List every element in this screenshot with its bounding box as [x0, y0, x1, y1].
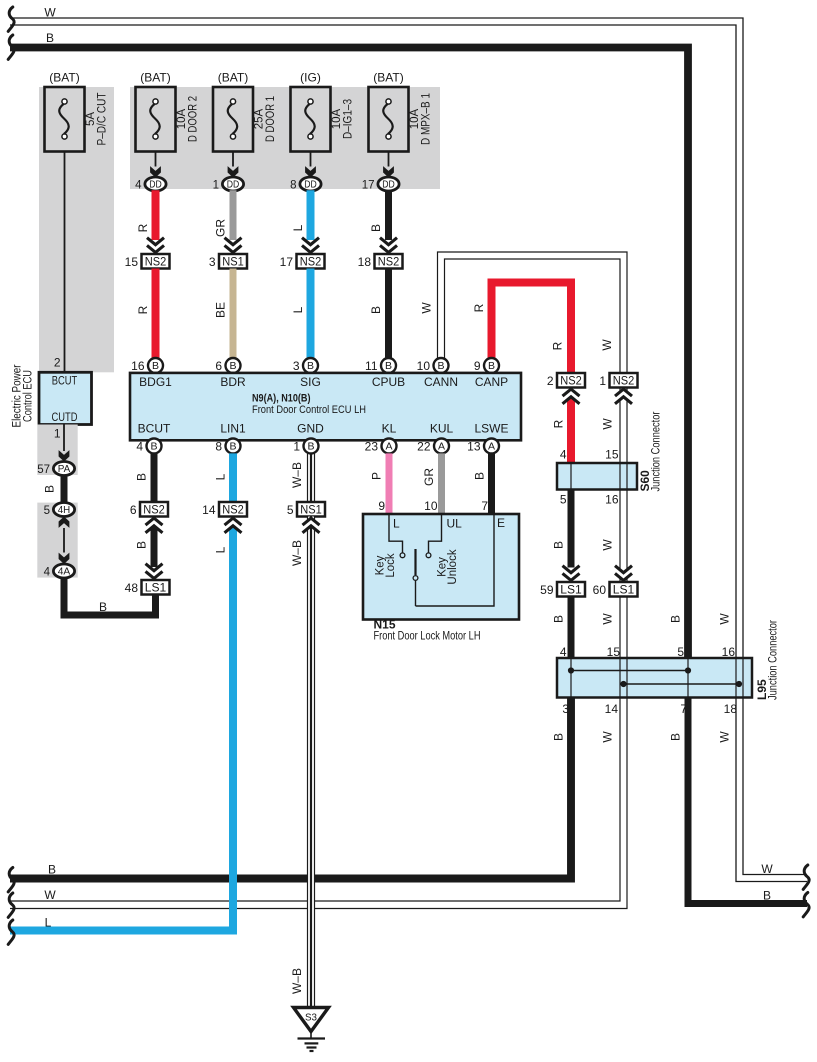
svg-text:A: A: [438, 441, 445, 453]
svg-text:B: B: [135, 473, 149, 481]
svg-text:59: 59: [540, 583, 554, 597]
svg-text:1: 1: [54, 427, 61, 441]
svg-text:(BAT): (BAT): [49, 71, 79, 85]
svg-text:N9(A), N10(B): N9(A), N10(B): [252, 393, 311, 405]
svg-text:NS2: NS2: [300, 255, 322, 269]
svg-text:5: 5: [560, 493, 567, 507]
svg-text:BDG1: BDG1: [139, 375, 172, 389]
svg-text:BDR: BDR: [220, 375, 246, 389]
svg-text:6: 6: [215, 359, 222, 373]
svg-text:W: W: [420, 302, 434, 314]
svg-text:3: 3: [293, 359, 300, 373]
svg-text:R: R: [136, 305, 150, 314]
svg-text:S3: S3: [305, 1013, 318, 1024]
svg-text:Unlock: Unlock: [447, 549, 459, 584]
svg-text:B: B: [152, 360, 159, 372]
svg-text:R: R: [551, 341, 565, 350]
svg-text:W: W: [718, 613, 732, 625]
svg-text:10: 10: [417, 359, 431, 373]
svg-text:KUL: KUL: [430, 422, 454, 436]
svg-text:18: 18: [724, 702, 738, 716]
svg-text:A: A: [488, 441, 495, 453]
svg-text:10A: 10A: [176, 108, 188, 129]
svg-text:B: B: [99, 600, 107, 614]
svg-text:25A: 25A: [254, 108, 266, 129]
svg-text:R: R: [552, 419, 566, 428]
svg-text:L: L: [393, 517, 400, 531]
svg-text:14: 14: [202, 503, 216, 517]
svg-text:10A: 10A: [409, 108, 421, 129]
svg-text:B: B: [669, 615, 683, 623]
svg-text:10A: 10A: [331, 108, 343, 129]
svg-text:2: 2: [547, 374, 554, 388]
svg-text:KL: KL: [382, 422, 397, 436]
svg-text:22: 22: [417, 439, 431, 453]
svg-text:Front Door Control ECU LH: Front Door Control ECU LH: [252, 404, 366, 416]
svg-text:DD: DD: [304, 179, 317, 190]
svg-text:(BAT): (BAT): [140, 71, 170, 85]
svg-text:13: 13: [467, 439, 481, 453]
svg-text:B: B: [385, 360, 392, 372]
svg-text:BCUT: BCUT: [138, 422, 171, 436]
svg-text:60: 60: [593, 583, 607, 597]
svg-text:B: B: [48, 863, 56, 877]
svg-text:A: A: [385, 441, 392, 453]
svg-text:18: 18: [358, 255, 372, 269]
svg-text:5: 5: [44, 505, 50, 517]
svg-text:CPUB: CPUB: [372, 375, 405, 389]
svg-text:(BAT): (BAT): [218, 71, 248, 85]
svg-text:B: B: [669, 733, 683, 741]
svg-text:W: W: [718, 731, 732, 743]
svg-text:SIG: SIG: [300, 375, 321, 389]
svg-text:DD: DD: [149, 179, 162, 190]
svg-text:11: 11: [365, 359, 378, 373]
svg-text:14: 14: [605, 702, 619, 716]
svg-text:W: W: [44, 6, 56, 20]
svg-text:W–B: W–B: [290, 462, 304, 488]
svg-text:4: 4: [136, 439, 143, 453]
svg-text:B: B: [307, 441, 314, 453]
svg-text:LS1: LS1: [145, 581, 167, 595]
svg-text:15: 15: [125, 255, 139, 269]
svg-text:8: 8: [290, 179, 296, 191]
svg-text:1: 1: [293, 439, 300, 453]
svg-text:15: 15: [605, 448, 619, 462]
svg-text:4: 4: [44, 566, 51, 578]
svg-text:GND: GND: [297, 422, 324, 436]
svg-text:9: 9: [378, 499, 385, 513]
svg-text:1: 1: [599, 374, 606, 388]
svg-text:R: R: [472, 303, 486, 312]
svg-text:4: 4: [135, 179, 142, 191]
svg-text:B: B: [135, 541, 149, 549]
svg-text:W: W: [601, 418, 615, 430]
svg-text:4H: 4H: [58, 505, 71, 516]
svg-text:16: 16: [605, 493, 619, 507]
svg-text:B: B: [150, 441, 157, 453]
svg-text:W: W: [601, 613, 615, 625]
svg-text:NS1: NS1: [300, 503, 322, 517]
svg-text:W: W: [601, 539, 615, 551]
svg-text:D–IG1–3: D–IG1–3: [343, 99, 355, 139]
svg-text:B: B: [229, 360, 236, 372]
svg-text:BE: BE: [214, 302, 228, 318]
svg-text:8: 8: [215, 439, 222, 453]
svg-text:(BAT): (BAT): [373, 71, 403, 85]
svg-text:4: 4: [560, 448, 567, 462]
svg-text:B: B: [763, 889, 771, 903]
svg-text:(IG): (IG): [300, 71, 321, 85]
svg-text:NS1: NS1: [222, 255, 244, 269]
svg-text:B: B: [43, 485, 57, 493]
svg-text:B: B: [437, 360, 444, 372]
svg-text:B: B: [369, 306, 383, 314]
svg-text:17: 17: [362, 179, 375, 191]
svg-text:B: B: [307, 360, 314, 372]
svg-text:L: L: [291, 224, 305, 231]
svg-text:R: R: [136, 223, 150, 232]
svg-text:NS2: NS2: [560, 374, 582, 388]
svg-text:NS2: NS2: [613, 374, 635, 388]
svg-text:NS2: NS2: [378, 255, 400, 269]
svg-text:DD: DD: [382, 179, 395, 190]
svg-text:B: B: [46, 31, 54, 45]
svg-text:10: 10: [424, 499, 438, 513]
svg-text:6: 6: [130, 503, 137, 517]
svg-text:BCUT: BCUT: [52, 376, 78, 388]
svg-text:Junction Connector: Junction Connector: [649, 412, 663, 492]
svg-text:UL: UL: [447, 517, 463, 531]
svg-text:LS1: LS1: [613, 583, 635, 597]
svg-text:B: B: [369, 224, 383, 232]
svg-text:2: 2: [54, 356, 61, 370]
svg-text:B: B: [488, 360, 495, 372]
svg-text:NS2: NS2: [222, 503, 244, 517]
svg-text:LS1: LS1: [560, 583, 582, 597]
svg-text:CUTD: CUTD: [52, 412, 78, 424]
svg-text:W–B: W–B: [290, 968, 304, 994]
svg-text:23: 23: [365, 439, 379, 453]
svg-text:5A: 5A: [85, 112, 97, 126]
svg-text:W: W: [600, 339, 614, 351]
svg-text:D DOOR 1: D DOOR 1: [265, 96, 277, 142]
svg-text:L: L: [291, 306, 305, 313]
svg-text:GR: GR: [214, 219, 228, 237]
svg-text:Lock: Lock: [385, 553, 397, 578]
svg-text:W–B: W–B: [290, 540, 304, 566]
svg-text:D MPX–B 1: D MPX–B 1: [421, 93, 433, 145]
svg-text:5: 5: [287, 503, 294, 517]
svg-text:LSWE: LSWE: [474, 422, 508, 436]
svg-text:W: W: [601, 731, 615, 743]
svg-text:PA: PA: [58, 464, 71, 475]
svg-text:CANP: CANP: [475, 375, 508, 389]
svg-text:L: L: [214, 473, 228, 480]
svg-text:1: 1: [213, 179, 219, 191]
svg-text:LIN1: LIN1: [220, 422, 246, 436]
svg-text:W: W: [44, 888, 56, 902]
svg-text:B: B: [552, 733, 566, 741]
svg-text:Control ECU: Control ECU: [23, 370, 35, 422]
svg-text:B: B: [552, 541, 566, 549]
svg-text:GR: GR: [422, 468, 436, 486]
svg-text:NS2: NS2: [145, 255, 167, 269]
svg-text:P: P: [370, 472, 384, 480]
svg-text:CANN: CANN: [424, 375, 458, 389]
svg-text:17: 17: [280, 255, 294, 269]
svg-text:48: 48: [125, 581, 139, 595]
svg-text:B: B: [552, 615, 566, 623]
svg-text:L: L: [45, 916, 52, 930]
svg-text:9: 9: [474, 359, 481, 373]
svg-text:57: 57: [37, 464, 50, 476]
svg-text:NS2: NS2: [143, 503, 165, 517]
svg-text:L: L: [214, 546, 228, 553]
svg-text:Front Door Lock Motor LH: Front Door Lock Motor LH: [374, 629, 481, 643]
svg-text:4A: 4A: [58, 566, 71, 577]
svg-text:W: W: [761, 862, 773, 876]
svg-text:P–D/C CUT: P–D/C CUT: [97, 93, 109, 146]
svg-text:E: E: [497, 516, 505, 530]
svg-text:DD: DD: [227, 179, 240, 190]
svg-text:3: 3: [209, 255, 216, 269]
svg-text:B: B: [229, 441, 236, 453]
svg-text:16: 16: [131, 359, 145, 373]
svg-text:B: B: [473, 472, 487, 480]
svg-text:D DOOR 2: D DOOR 2: [188, 96, 200, 142]
svg-text:Junction Connector: Junction Connector: [766, 620, 780, 700]
svg-text:7: 7: [481, 499, 488, 513]
